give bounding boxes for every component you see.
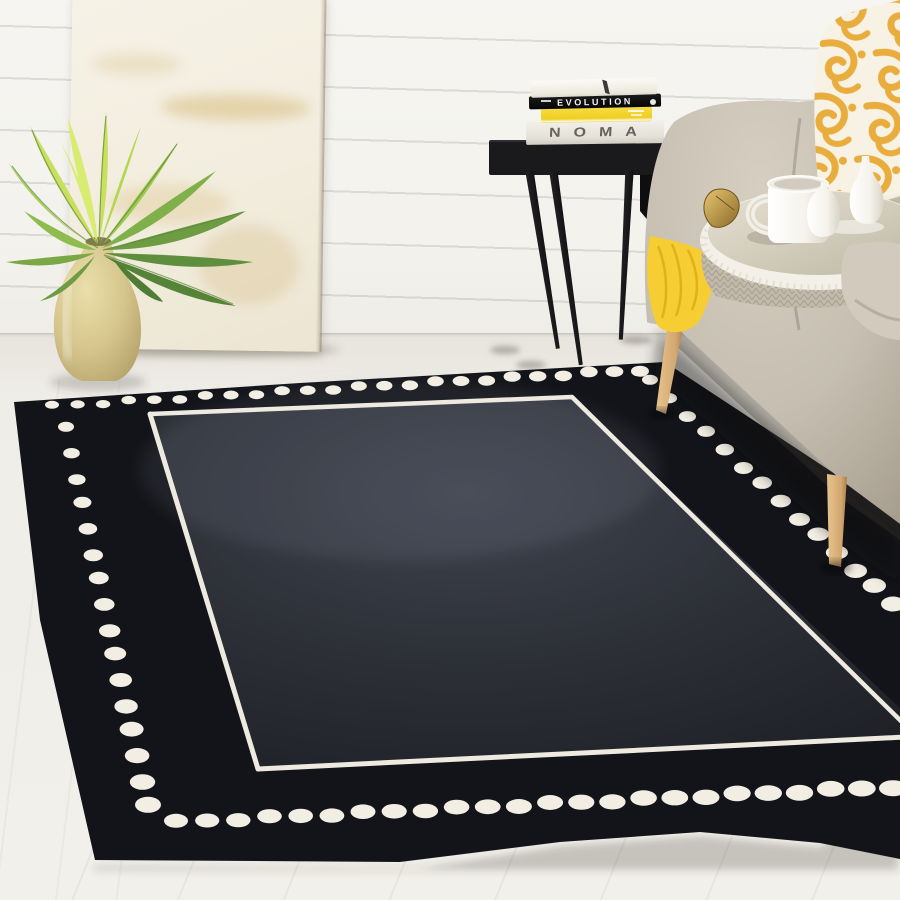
fern-plant: [6, 112, 253, 306]
scene-graphics: [0, 0, 900, 900]
living-room-scene: NOMA EVOLUTION: [0, 0, 900, 900]
